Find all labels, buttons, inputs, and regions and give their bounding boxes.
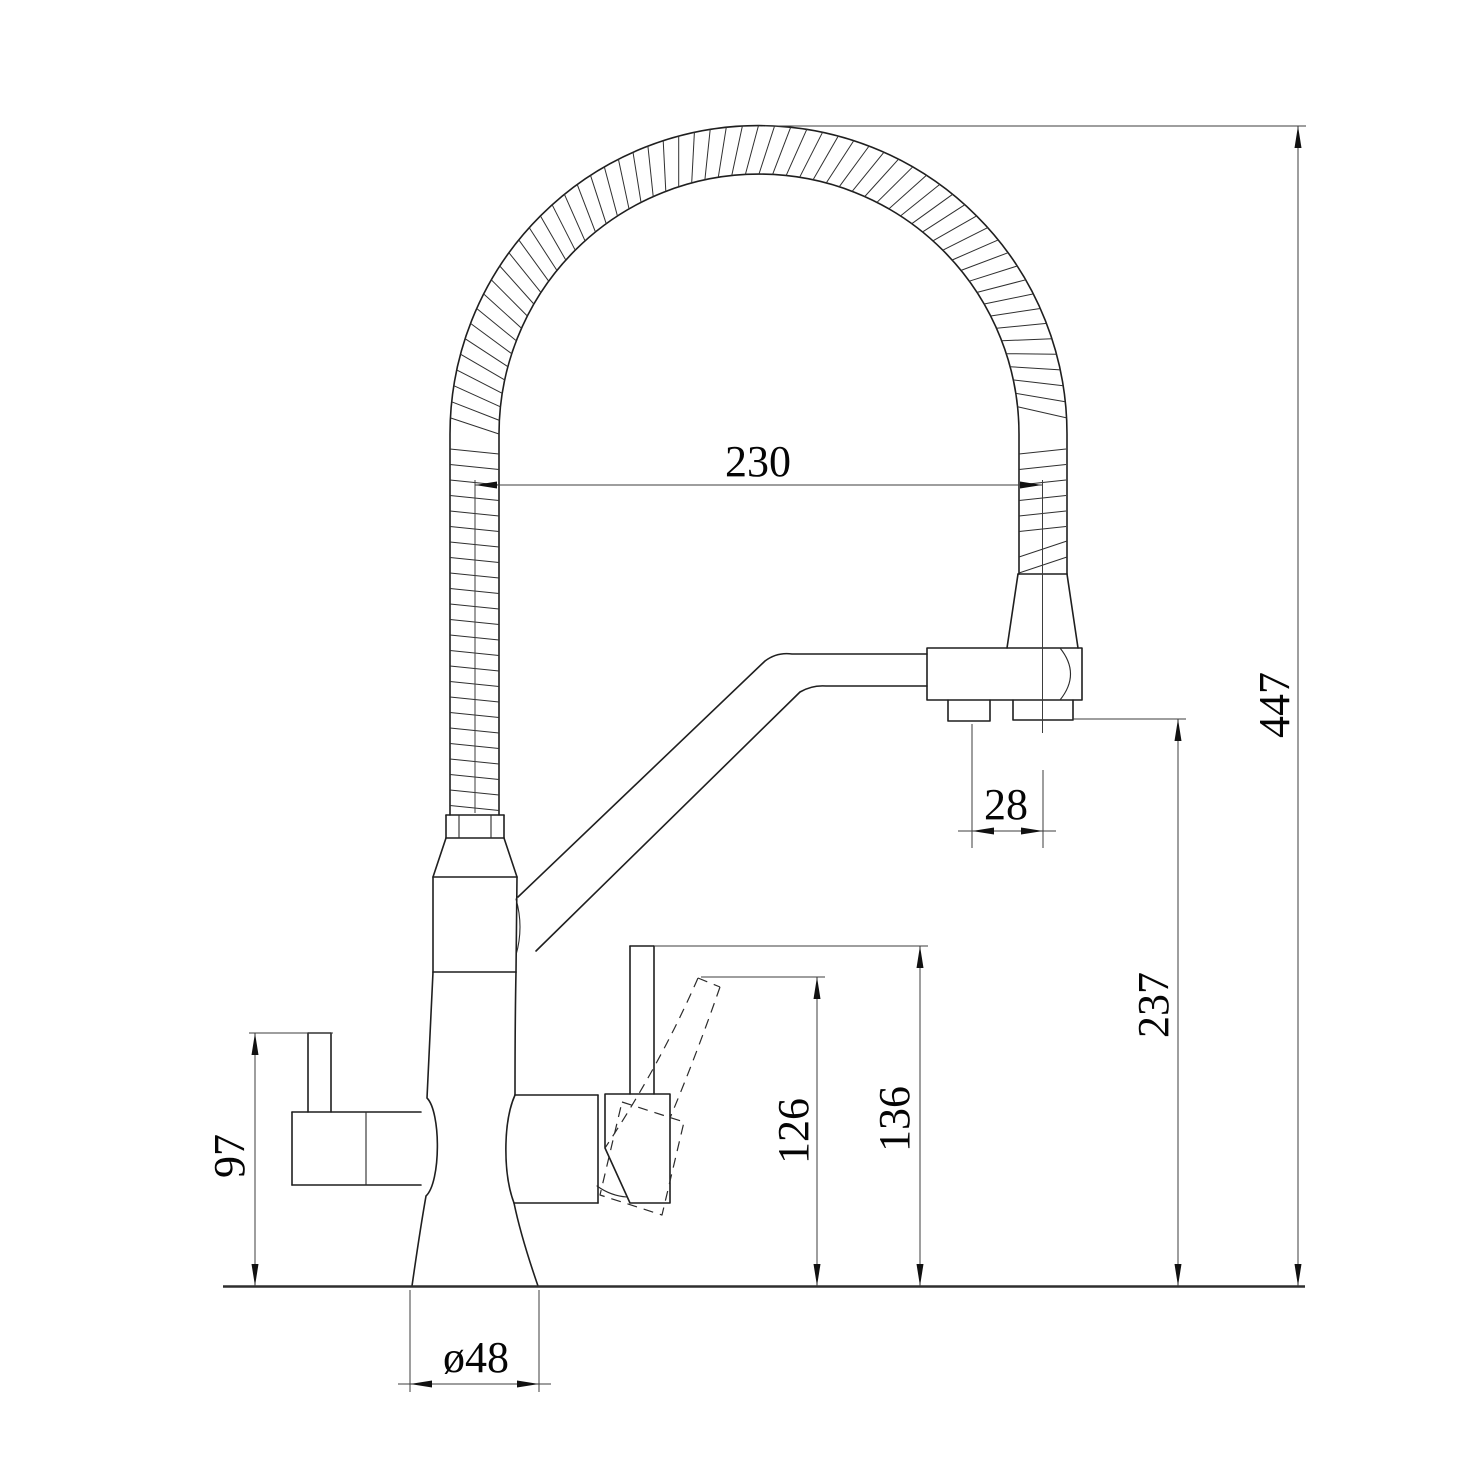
dim-hose-arch-width: 230 bbox=[475, 437, 1043, 813]
technical-drawing-canvas: 230 447 237 bbox=[0, 0, 1481, 1481]
dim-side-handle-height: 97 bbox=[205, 1033, 333, 1286]
dimension-annotations: 230 447 237 bbox=[205, 126, 1306, 1392]
dim-label-base-diameter: ø48 bbox=[443, 1333, 509, 1382]
dim-label-overall-height: 447 bbox=[1250, 672, 1299, 738]
faucet-body bbox=[412, 815, 598, 1286]
side-handle bbox=[292, 1033, 421, 1185]
dim-base-diameter: ø48 bbox=[398, 1290, 551, 1392]
spout-arm bbox=[516, 654, 927, 955]
dim-spout-underside-height: 237 bbox=[1073, 719, 1186, 1286]
faucet-technical-drawing: 230 447 237 bbox=[0, 0, 1481, 1481]
aerator-outlet bbox=[948, 700, 990, 721]
dim-label-side-handle: 97 bbox=[205, 1134, 254, 1178]
mixer-handle-alt-position bbox=[597, 978, 720, 1215]
mixer-handle bbox=[597, 946, 720, 1215]
dim-label-spout-underside: 237 bbox=[1129, 972, 1178, 1038]
dim-outlet-offset: 28 bbox=[958, 724, 1056, 848]
dim-lever-tip-height: 126 bbox=[701, 977, 825, 1286]
dim-label-arch-width: 230 bbox=[725, 437, 791, 486]
hose-nut bbox=[446, 815, 504, 838]
dim-label-handle-stem: 136 bbox=[870, 1086, 919, 1152]
spray-head bbox=[927, 574, 1082, 721]
dim-label-lever-tip: 126 bbox=[769, 1098, 818, 1164]
dim-label-outlet-offset: 28 bbox=[984, 780, 1028, 829]
